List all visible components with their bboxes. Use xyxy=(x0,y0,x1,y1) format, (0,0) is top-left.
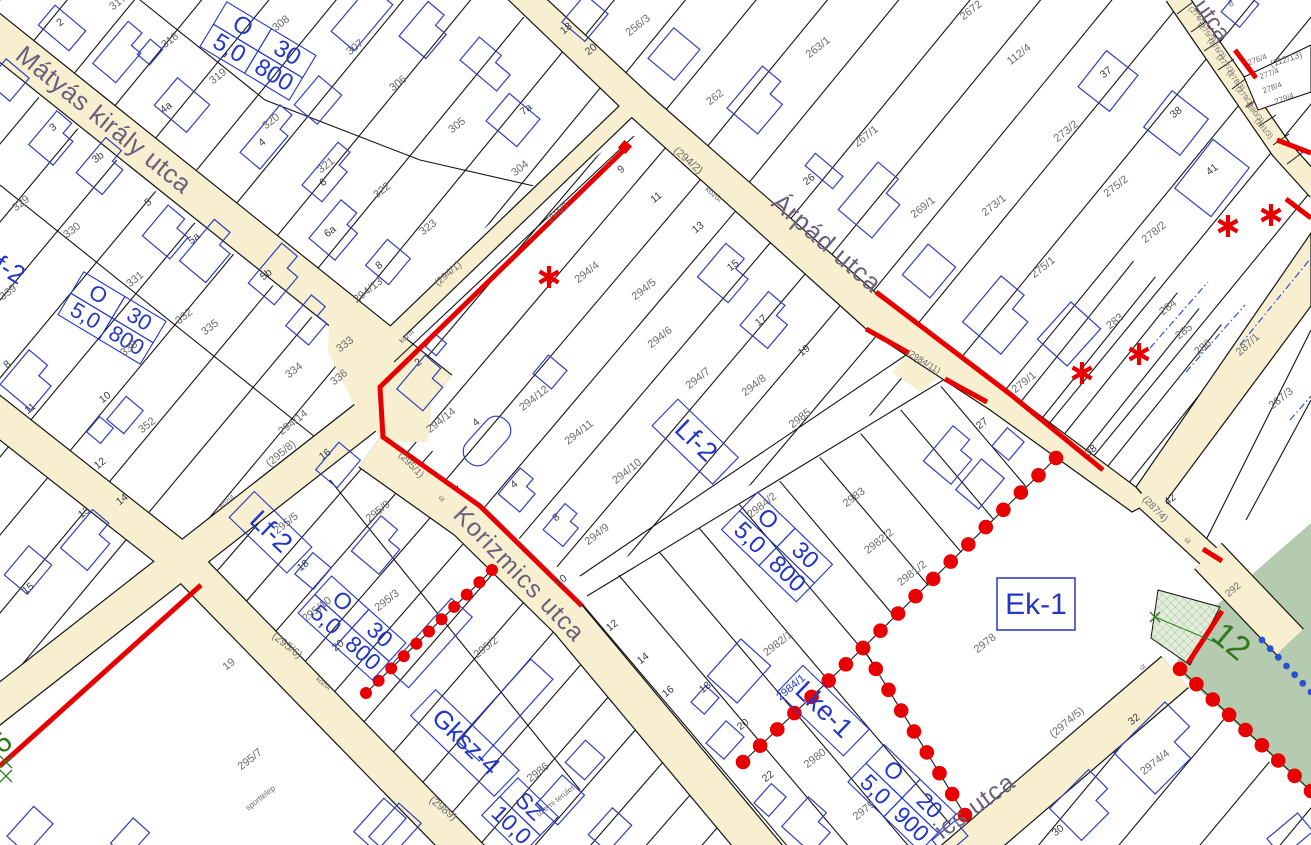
svg-text:Ek-1: Ek-1 xyxy=(1005,588,1067,621)
